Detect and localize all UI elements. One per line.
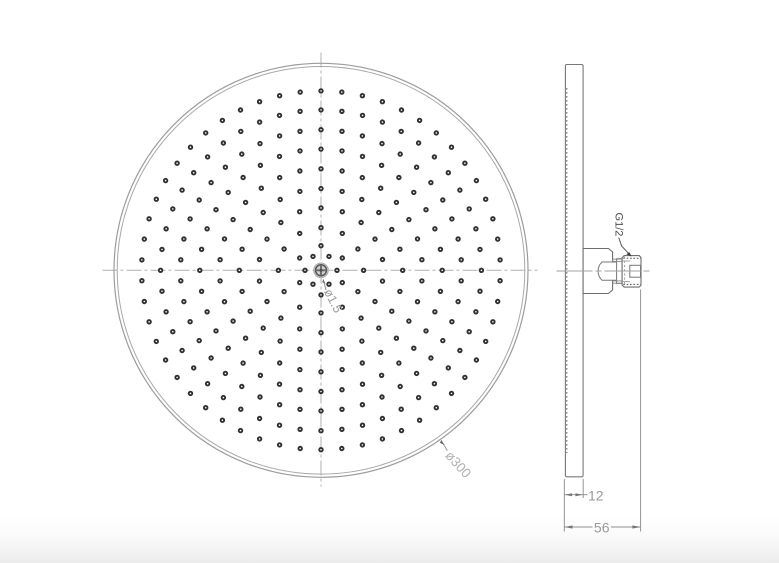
- svg-text:12: 12: [588, 488, 604, 504]
- svg-text:G1/2: G1/2: [612, 213, 624, 237]
- svg-text:56: 56: [594, 520, 610, 536]
